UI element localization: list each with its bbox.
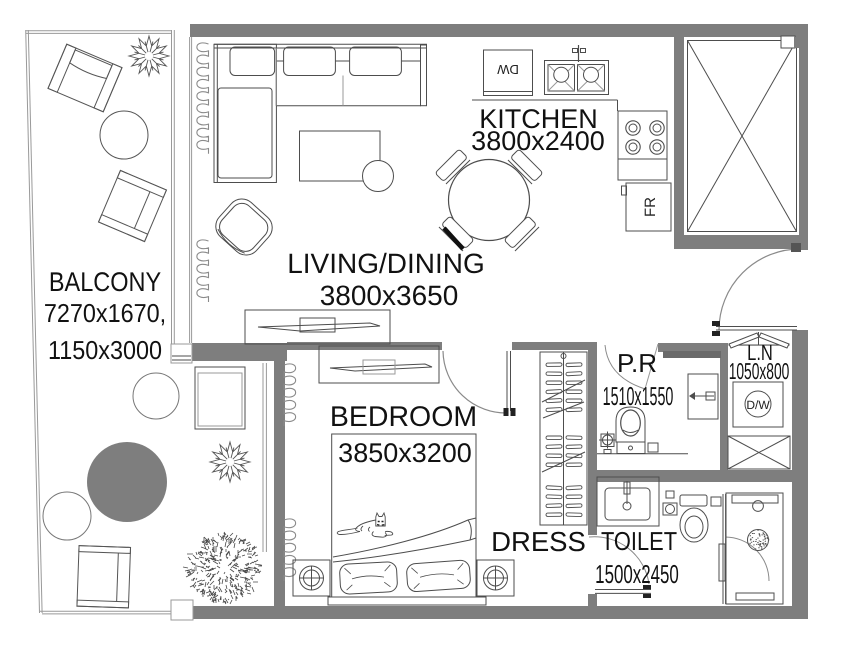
svg-text:FR: FR [642,197,659,217]
svg-text:3850x3200: 3850x3200 [338,438,472,468]
svg-text:D/W: D/W [746,398,770,412]
svg-text:LIVING/DINING: LIVING/DINING [287,248,485,279]
svg-text:BALCONY: BALCONY [49,267,161,297]
svg-text:1150x3000: 1150x3000 [48,335,162,365]
svg-text:1510x1550: 1510x1550 [603,381,674,411]
svg-text:P.R: P.R [617,348,657,378]
svg-text:1050x800: 1050x800 [729,358,790,384]
svg-text:BEDROOM: BEDROOM [330,401,477,433]
svg-text:3800x3650: 3800x3650 [320,280,459,311]
svg-text:3800x2400: 3800x2400 [471,126,605,156]
svg-text:1500x2450: 1500x2450 [595,559,679,589]
svg-text:TOILET: TOILET [601,526,677,556]
svg-text:DW: DW [496,62,518,77]
svg-text:7270x1670,: 7270x1670, [44,298,166,328]
svg-text:DRESS: DRESS [491,526,586,557]
